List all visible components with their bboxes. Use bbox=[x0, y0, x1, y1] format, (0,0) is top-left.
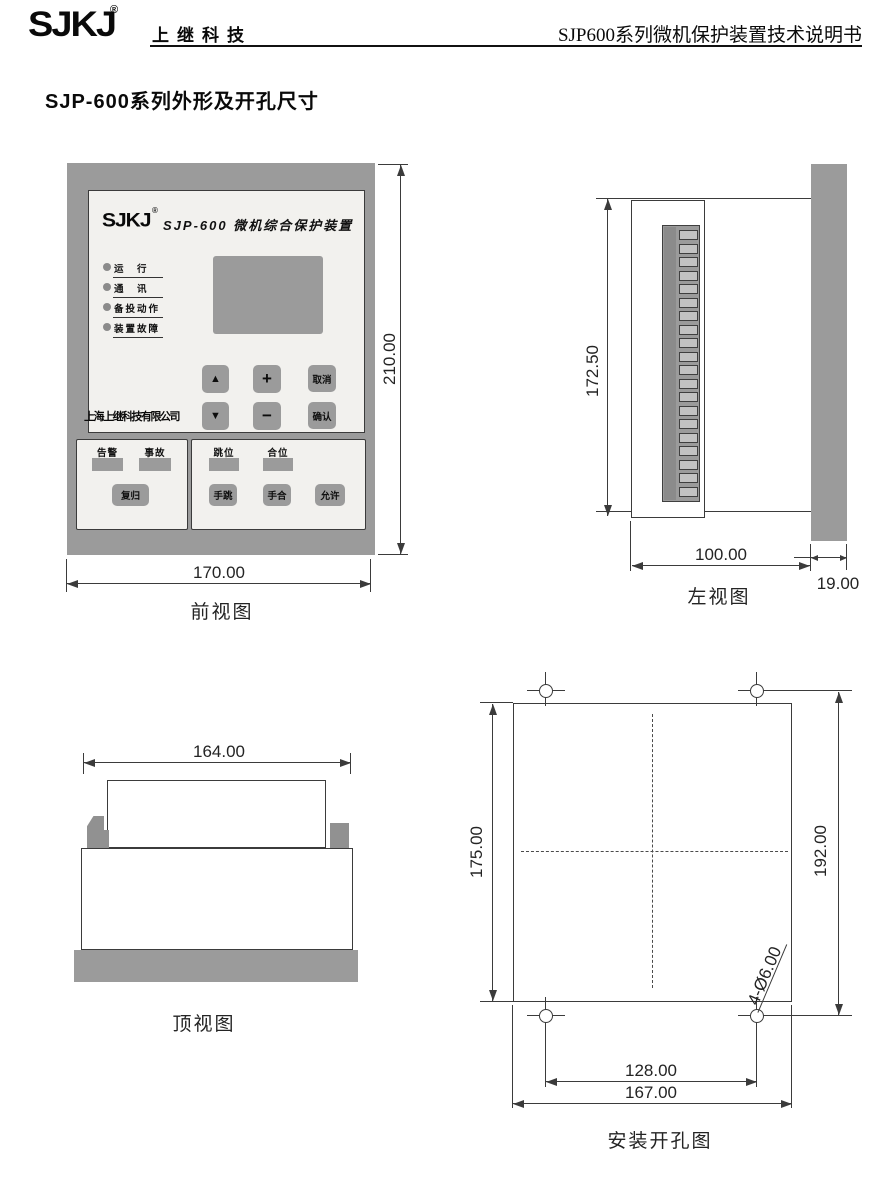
dim-value-depth: 100.00 bbox=[671, 545, 771, 565]
dim-value-width: 170.00 bbox=[169, 563, 269, 583]
led-standby-label: 备投动作 bbox=[114, 301, 160, 315]
terminal-cell bbox=[679, 487, 698, 497]
dim-tail-line bbox=[794, 557, 811, 558]
dim-line-panel-thickness bbox=[811, 557, 847, 558]
terminal-cell bbox=[679, 271, 698, 281]
mounting-hole bbox=[539, 684, 553, 698]
terminal-cell bbox=[679, 338, 698, 348]
dim-value-height: 210.00 bbox=[380, 319, 400, 399]
dim-value-hole-spacing: 128.00 bbox=[601, 1061, 701, 1081]
dim-line-hole-height bbox=[838, 692, 839, 1015]
dim-line-height bbox=[400, 165, 401, 554]
terminal-block bbox=[679, 230, 698, 497]
mounting-hole bbox=[539, 1009, 553, 1023]
registered-trademark-icon: ® bbox=[110, 4, 118, 16]
confirm-button: 确认 bbox=[308, 402, 336, 429]
fault-indicator bbox=[139, 458, 171, 471]
plus-button: + bbox=[253, 365, 281, 393]
terminal-cell bbox=[679, 352, 698, 362]
manual-page: SJKJ ® 上继科技 SJP600系列微机保护装置技术说明书 SJP-600系… bbox=[0, 0, 888, 1181]
terminal-strip-rail bbox=[664, 227, 676, 500]
terminal-cell bbox=[679, 406, 698, 416]
left-view-panel-bar bbox=[811, 164, 847, 541]
mounting-hole bbox=[750, 684, 764, 698]
top-view-case bbox=[81, 848, 353, 950]
left-latch-step bbox=[104, 830, 109, 848]
terminal-cell bbox=[679, 325, 698, 335]
led-run-label: 运 行 bbox=[114, 261, 149, 275]
lcd-screen bbox=[213, 256, 323, 334]
dim-line-cutout-height bbox=[492, 704, 493, 1001]
terminal-cell bbox=[679, 257, 698, 267]
panel-registered-icon: ® bbox=[152, 206, 158, 215]
left-view-caption: 左视图 bbox=[669, 582, 769, 609]
dim-line-left-height bbox=[607, 199, 608, 516]
left-latch-clip bbox=[87, 816, 104, 848]
led-underline bbox=[113, 277, 163, 278]
extension-line bbox=[378, 554, 408, 555]
trip-indicator bbox=[209, 458, 239, 471]
fault-label: 事故 bbox=[139, 445, 171, 459]
led-fault-label: 装置故障 bbox=[114, 321, 160, 335]
dim-line-top-width bbox=[84, 762, 351, 763]
panel-title: SJP-600 微机综合保护装置 bbox=[163, 215, 353, 234]
cancel-button: 取消 bbox=[308, 365, 336, 392]
dim-line-depth bbox=[632, 565, 810, 566]
document-title: SJP600系列微机保护装置技术说明书 bbox=[480, 20, 862, 47]
horizontal-centerline bbox=[521, 851, 788, 852]
terminal-cell bbox=[679, 244, 698, 254]
led-comm-label: 通 讯 bbox=[114, 281, 149, 295]
terminal-cell bbox=[679, 365, 698, 375]
minus-button: − bbox=[253, 402, 281, 430]
manual-close-button: 手合 bbox=[263, 484, 291, 506]
extension-line bbox=[480, 702, 513, 703]
terminal-cell bbox=[679, 230, 698, 240]
brand-name: 上继科技 bbox=[152, 21, 252, 46]
dim-value-top-width: 164.00 bbox=[169, 742, 269, 762]
close-indicator bbox=[263, 458, 293, 471]
led-underline bbox=[113, 317, 163, 318]
terminal-cell bbox=[679, 473, 698, 483]
led-comm-icon bbox=[103, 283, 111, 291]
dim-value-left-height: 172.50 bbox=[583, 331, 603, 411]
up-button: ▲ bbox=[202, 365, 229, 393]
alarm-indicator bbox=[92, 458, 123, 471]
panel-logo: SJKJ bbox=[102, 210, 151, 232]
alarm-label: 告警 bbox=[92, 445, 123, 459]
dim-value-panel-thickness: 19.00 bbox=[798, 574, 878, 594]
top-view-panel-bar bbox=[74, 950, 358, 982]
led-fault-icon bbox=[103, 323, 111, 331]
terminal-cell bbox=[679, 446, 698, 456]
led-underline bbox=[113, 297, 163, 298]
cutout-view-caption: 安装开孔图 bbox=[585, 1126, 735, 1153]
extension-line bbox=[512, 1005, 513, 1108]
front-view-caption: 前视图 bbox=[172, 597, 272, 624]
permit-button: 允许 bbox=[315, 484, 345, 506]
terminal-cell bbox=[679, 284, 698, 294]
led-standby-icon bbox=[103, 303, 111, 311]
led-underline bbox=[113, 337, 163, 338]
reset-button: 复归 bbox=[112, 484, 149, 506]
extension-line bbox=[480, 1001, 513, 1002]
led-run-icon bbox=[103, 263, 111, 271]
dim-line-width bbox=[67, 583, 371, 584]
terminal-cell bbox=[679, 311, 698, 321]
manual-trip-button: 手跳 bbox=[209, 484, 237, 506]
dim-value-cutout-width: 167.00 bbox=[601, 1083, 701, 1103]
close-position-label: 合位 bbox=[263, 445, 293, 459]
extension-line bbox=[791, 1005, 792, 1108]
top-view-lid bbox=[107, 780, 326, 848]
trip-position-label: 跳位 bbox=[209, 445, 239, 459]
top-view-caption: 顶视图 bbox=[154, 1009, 254, 1036]
terminal-cell bbox=[679, 298, 698, 308]
terminal-cell bbox=[679, 379, 698, 389]
terminal-cell bbox=[679, 392, 698, 402]
dim-value-hole-height: 192.00 bbox=[811, 811, 831, 891]
terminal-cell bbox=[679, 419, 698, 429]
dim-line-hole-spacing bbox=[546, 1081, 757, 1082]
terminal-cell bbox=[679, 433, 698, 443]
down-button: ▼ bbox=[202, 402, 229, 430]
company-logo: SJKJ bbox=[28, 6, 115, 46]
company-name: 上海上继科技有限公司 bbox=[84, 408, 184, 424]
section-title: SJP-600系列外形及开孔尺寸 bbox=[45, 85, 319, 114]
dim-value-cutout-height: 175.00 bbox=[467, 812, 487, 892]
right-latch-clip bbox=[330, 823, 349, 848]
terminal-cell bbox=[679, 460, 698, 470]
case-top-line bbox=[596, 198, 811, 199]
dim-line-cutout-width bbox=[513, 1103, 792, 1104]
